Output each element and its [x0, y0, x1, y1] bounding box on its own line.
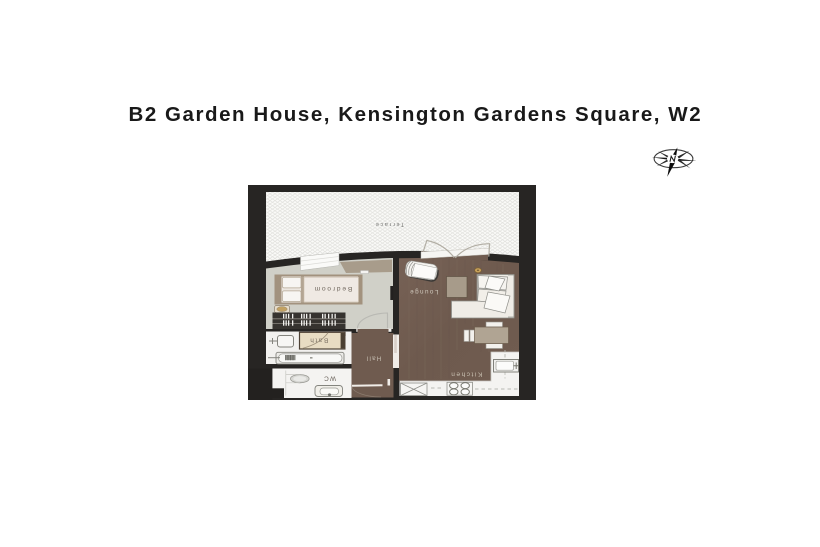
svg-text:Bedroom: Bedroom — [313, 285, 352, 292]
svg-text:Bath: Bath — [309, 337, 329, 344]
svg-text:B2 Garden House, Kensington Ga: B2 Garden House, Kensington Gardens Squa… — [129, 103, 703, 126]
svg-text:Hall: Hall — [366, 354, 381, 361]
svg-text:WC: WC — [323, 374, 336, 381]
svg-text:Kitchen: Kitchen — [450, 371, 483, 378]
svg-text:Terrace: Terrace — [374, 221, 404, 227]
svg-text:Lounge: Lounge — [409, 288, 439, 295]
